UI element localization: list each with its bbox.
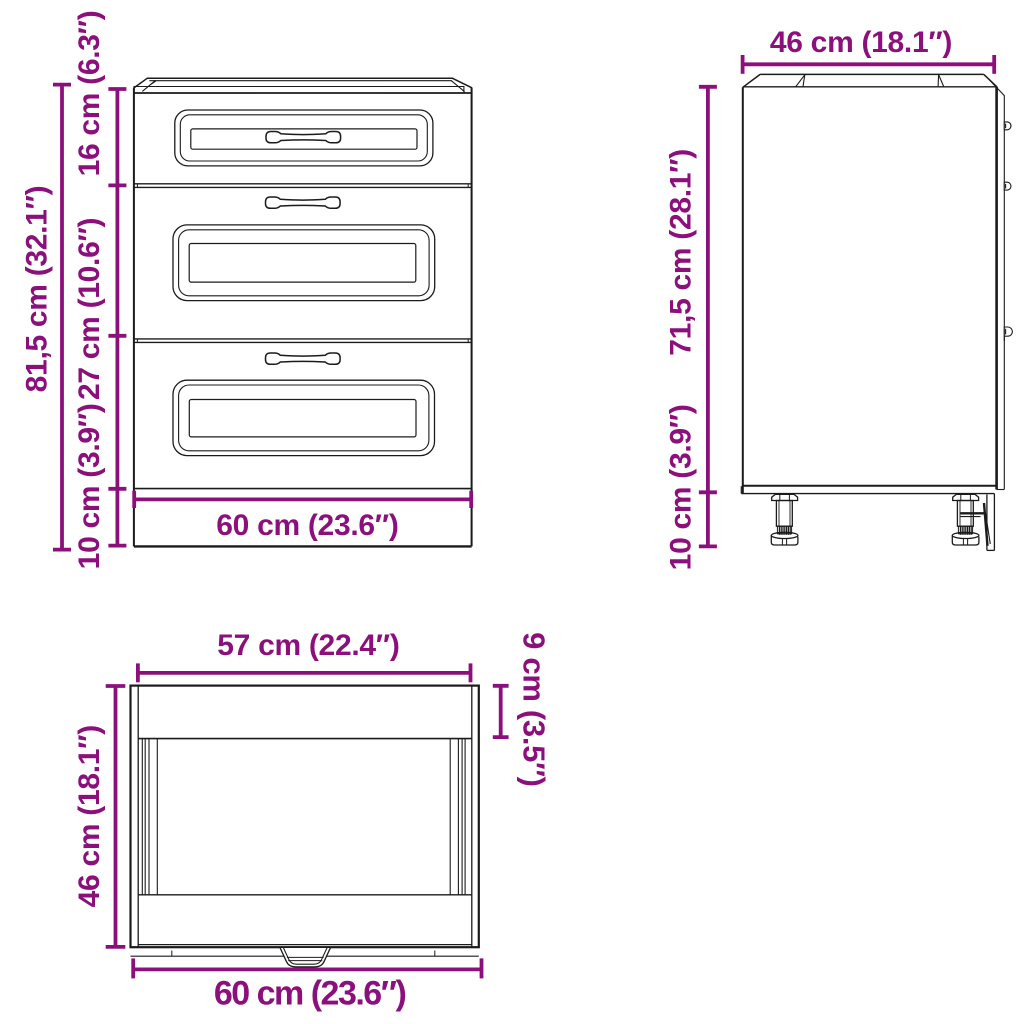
svg-text:46 cm (18.1″): 46 cm (18.1″)	[770, 26, 952, 59]
svg-text:16 cm (6.3″): 16 cm (6.3″)	[73, 11, 106, 177]
svg-text:57 cm (22.4″): 57 cm (22.4″)	[217, 629, 399, 662]
svg-text:10 cm (3.9″): 10 cm (3.9″)	[665, 404, 698, 570]
svg-text:71,5 cm (28.1″): 71,5 cm (28.1″)	[665, 149, 698, 356]
svg-text:46 cm (18.1″): 46 cm (18.1″)	[73, 725, 106, 907]
svg-text:10 cm (3.9″): 10 cm (3.9″)	[73, 403, 106, 569]
svg-text:60 cm (23.6″): 60 cm (23.6″)	[214, 974, 406, 1012]
svg-text:27 cm (10.6″): 27 cm (10.6″)	[73, 218, 106, 400]
svg-text:9 cm (3.5″): 9 cm (3.5″)	[517, 632, 552, 787]
svg-text:81,5 cm (32.1″): 81,5 cm (32.1″)	[21, 186, 54, 393]
svg-text:60 cm (23.6″): 60 cm (23.6″)	[216, 509, 398, 542]
